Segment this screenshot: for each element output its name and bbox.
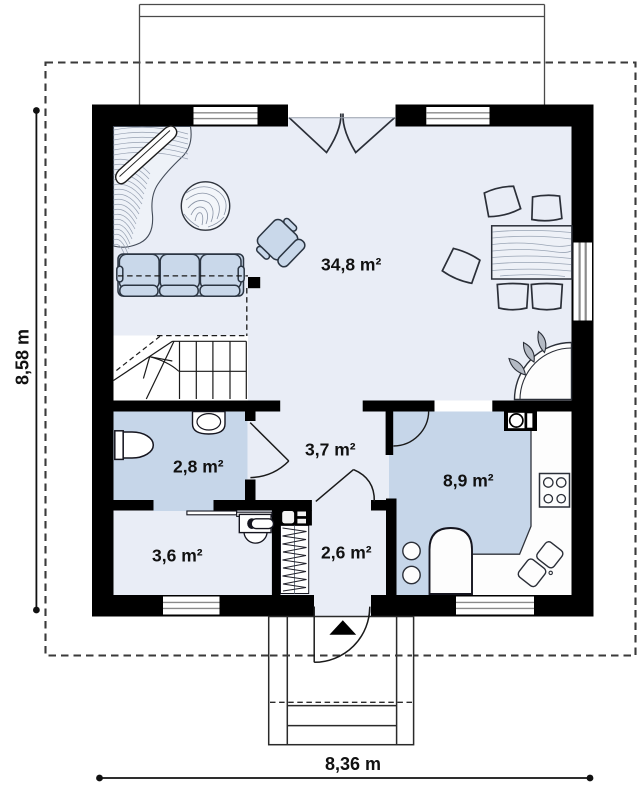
svg-text:2,8 m²: 2,8 m² bbox=[173, 457, 224, 477]
svg-text:3,6 m²: 3,6 m² bbox=[152, 546, 203, 566]
svg-text:8,9 m²: 8,9 m² bbox=[443, 471, 494, 491]
svg-text:3,7 m²: 3,7 m² bbox=[305, 440, 356, 460]
svg-text:2,6 m²: 2,6 m² bbox=[321, 543, 372, 563]
svg-text:34,8 m²: 34,8 m² bbox=[321, 255, 381, 275]
svg-text:8,36 m: 8,36 m bbox=[325, 754, 381, 774]
svg-text:8,58 m: 8,58 m bbox=[13, 329, 33, 385]
